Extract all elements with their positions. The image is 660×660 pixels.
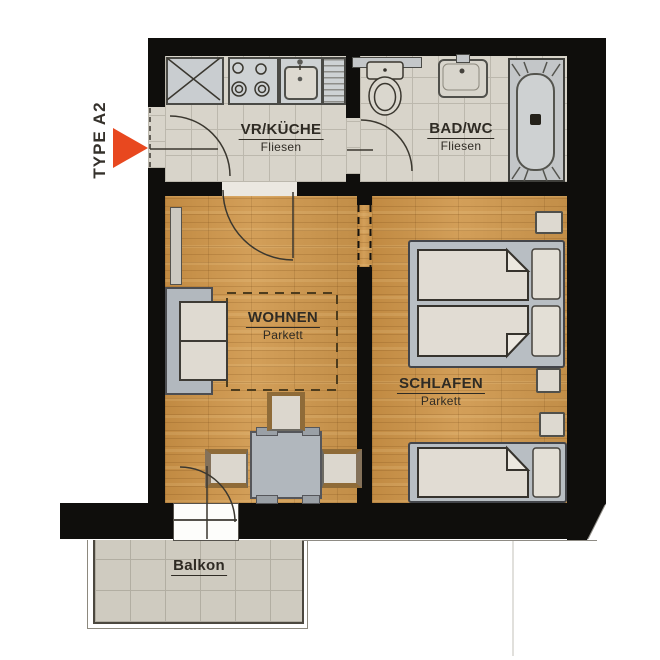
balcony-floor <box>93 540 304 624</box>
room-name-vr-kueche: VR/KÜCHE <box>239 121 324 140</box>
type-label: TYPE A2 <box>91 92 109 188</box>
wall-top <box>148 38 606 56</box>
double-bed-frame <box>408 240 565 368</box>
chair-right <box>322 449 362 488</box>
wall-kitchen-bath-lower <box>346 174 360 182</box>
single-bed-frame <box>408 442 567 503</box>
washbasin <box>438 59 488 98</box>
floorplan: VR/KÜCHE Fliesen BAD/WC Fliesen WOHNEN P… <box>0 0 660 660</box>
room-label-vr-kueche: VR/KÜCHE Fliesen <box>239 121 324 155</box>
kitchen-stove <box>228 57 279 105</box>
room-floor-schlafen: Parkett <box>397 395 485 409</box>
room-floor-vr-kueche: Fliesen <box>239 141 324 155</box>
room-name-bad-wc: BAD/WC <box>427 120 494 139</box>
table-tab-bl <box>256 495 278 504</box>
floor-bath-doorway <box>346 118 360 174</box>
nightstand-top <box>535 211 563 234</box>
wall-living-bedroom-upper <box>357 196 372 205</box>
wall-right <box>567 38 606 540</box>
wall-mid-horizontal-right <box>297 182 606 196</box>
wall-left-lower <box>148 168 165 503</box>
wall-mid-horizontal-left <box>148 182 222 196</box>
bathtub <box>508 58 565 182</box>
dining-table <box>250 431 322 499</box>
table-tab-br <box>302 495 320 504</box>
room-floor-bad-wc: Fliesen <box>427 140 494 154</box>
nightstand-middle <box>536 368 561 393</box>
washbasin-tap <box>456 54 470 63</box>
bath-shelf <box>352 57 422 68</box>
room-label-wohnen: WOHNEN Parkett <box>246 309 320 343</box>
floor-bedroom-doorway <box>357 205 372 267</box>
kitchen-tall-cabinet <box>166 57 224 105</box>
kitchen-drainer <box>322 57 346 105</box>
threshold-kitchen-living <box>222 182 297 196</box>
balcony-door-threshold <box>173 503 239 541</box>
sink-basin <box>284 66 318 100</box>
floor-entrance-vestibule <box>148 107 165 168</box>
radiator <box>170 207 182 285</box>
chair-left <box>205 449 248 488</box>
wall-left-upper <box>148 38 165 107</box>
room-label-bad-wc: BAD/WC Fliesen <box>427 120 494 154</box>
wall-bottom <box>60 503 606 539</box>
room-name-balkon: Balkon <box>171 557 227 576</box>
chair-top <box>267 392 305 431</box>
room-name-wohnen: WOHNEN <box>246 309 320 328</box>
entrance-arrow-icon <box>113 128 148 168</box>
room-label-schlafen: SCHLAFEN Parkett <box>397 375 485 409</box>
room-floor-wohnen: Parkett <box>246 329 320 343</box>
balcony-door-threshold-line <box>173 519 237 521</box>
room-label-balkon: Balkon <box>171 557 227 576</box>
nightstand-lower <box>539 412 565 437</box>
room-name-schlafen: SCHLAFEN <box>397 375 485 394</box>
